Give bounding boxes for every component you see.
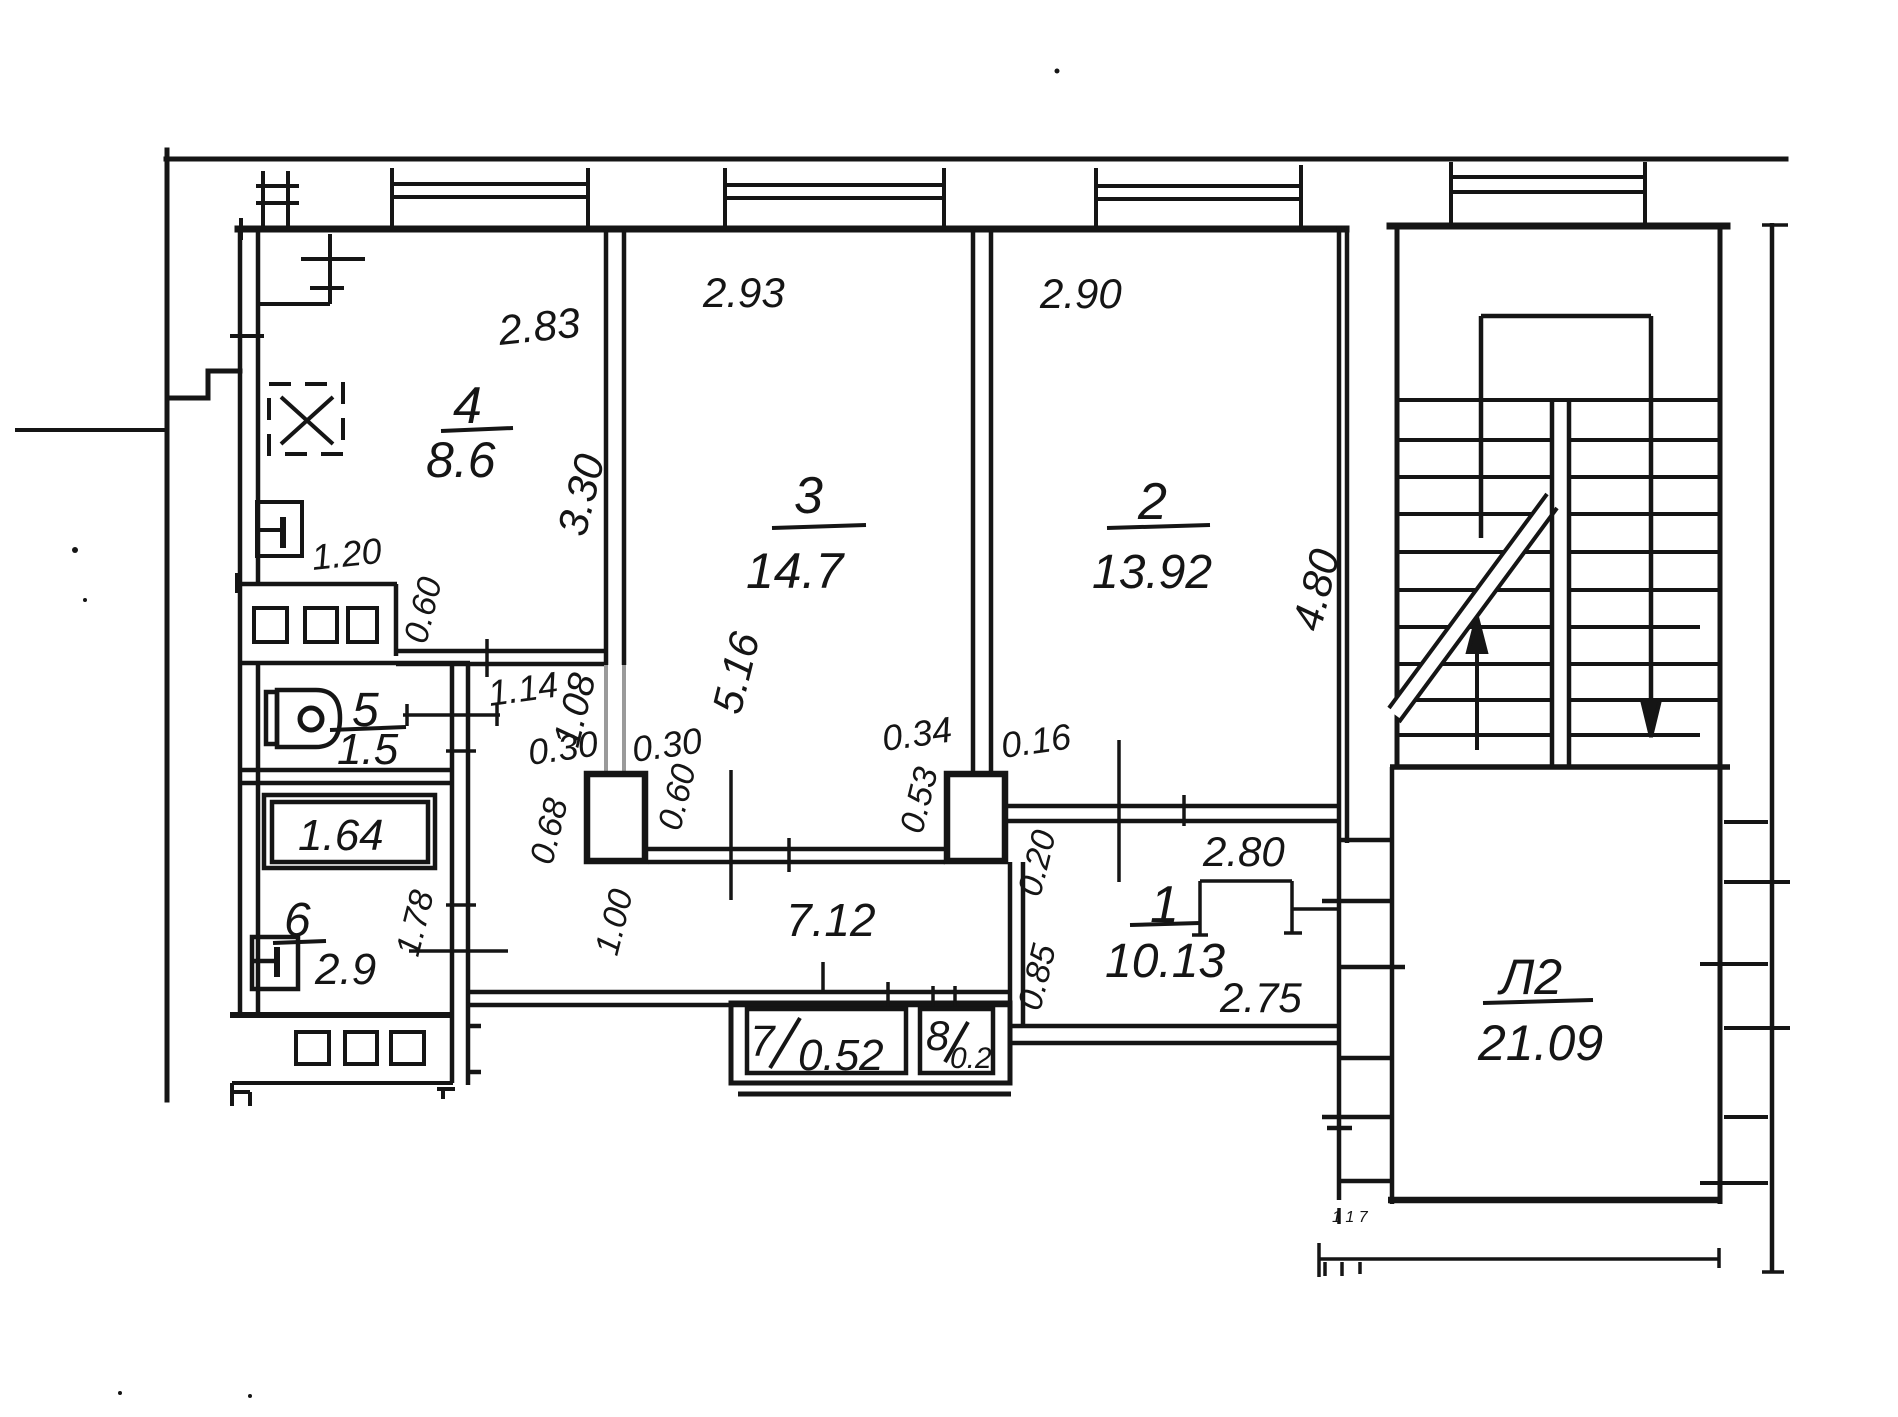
svg-text:0.52: 0.52: [798, 1031, 884, 1080]
svg-text:2.75: 2.75: [1219, 974, 1302, 1021]
svg-text:0.20: 0.20: [1011, 826, 1064, 899]
svg-text:0.85: 0.85: [1011, 940, 1064, 1013]
svg-text:0.60: 0.60: [397, 573, 450, 646]
svg-text:5.16: 5.16: [703, 627, 769, 718]
svg-text:10.13: 10.13: [1105, 935, 1225, 988]
svg-text:1 1 7: 1 1 7: [1332, 1209, 1369, 1226]
svg-text:0.34: 0.34: [879, 709, 954, 759]
svg-text:7.12: 7.12: [786, 894, 876, 946]
svg-text:2.90: 2.90: [1039, 270, 1122, 317]
svg-text:2.93: 2.93: [702, 269, 785, 316]
svg-text:1.64: 1.64: [298, 811, 384, 860]
svg-text:8: 8: [926, 1012, 950, 1059]
svg-text:1.00: 1.00: [588, 885, 641, 958]
svg-text:0.2: 0.2: [950, 1042, 992, 1075]
svg-text:0.30: 0.30: [525, 723, 600, 773]
svg-text:2: 2: [1137, 473, 1167, 531]
svg-text:0.16: 0.16: [998, 715, 1074, 765]
svg-text:2.83: 2.83: [495, 299, 582, 354]
svg-text:Л2: Л2: [1497, 949, 1562, 1005]
svg-text:3: 3: [794, 467, 823, 525]
svg-text:1.20: 1.20: [310, 530, 384, 578]
svg-text:2.80: 2.80: [1202, 828, 1285, 875]
svg-text:1.5: 1.5: [337, 725, 399, 774]
svg-text:14.7: 14.7: [746, 543, 846, 599]
svg-text:13.92: 13.92: [1092, 546, 1212, 599]
svg-text:2.9: 2.9: [314, 945, 376, 994]
svg-text:0.68: 0.68: [523, 794, 576, 867]
svg-text:1.14: 1.14: [485, 664, 560, 714]
svg-text:8.6: 8.6: [426, 432, 496, 488]
svg-text:7: 7: [750, 1017, 776, 1066]
svg-text:6: 6: [284, 894, 311, 947]
svg-text:21.09: 21.09: [1477, 1015, 1603, 1071]
svg-text:0.60: 0.60: [651, 760, 704, 833]
svg-text:0.53: 0.53: [893, 763, 946, 836]
svg-text:4: 4: [453, 377, 482, 435]
svg-text:1.78: 1.78: [389, 886, 442, 959]
